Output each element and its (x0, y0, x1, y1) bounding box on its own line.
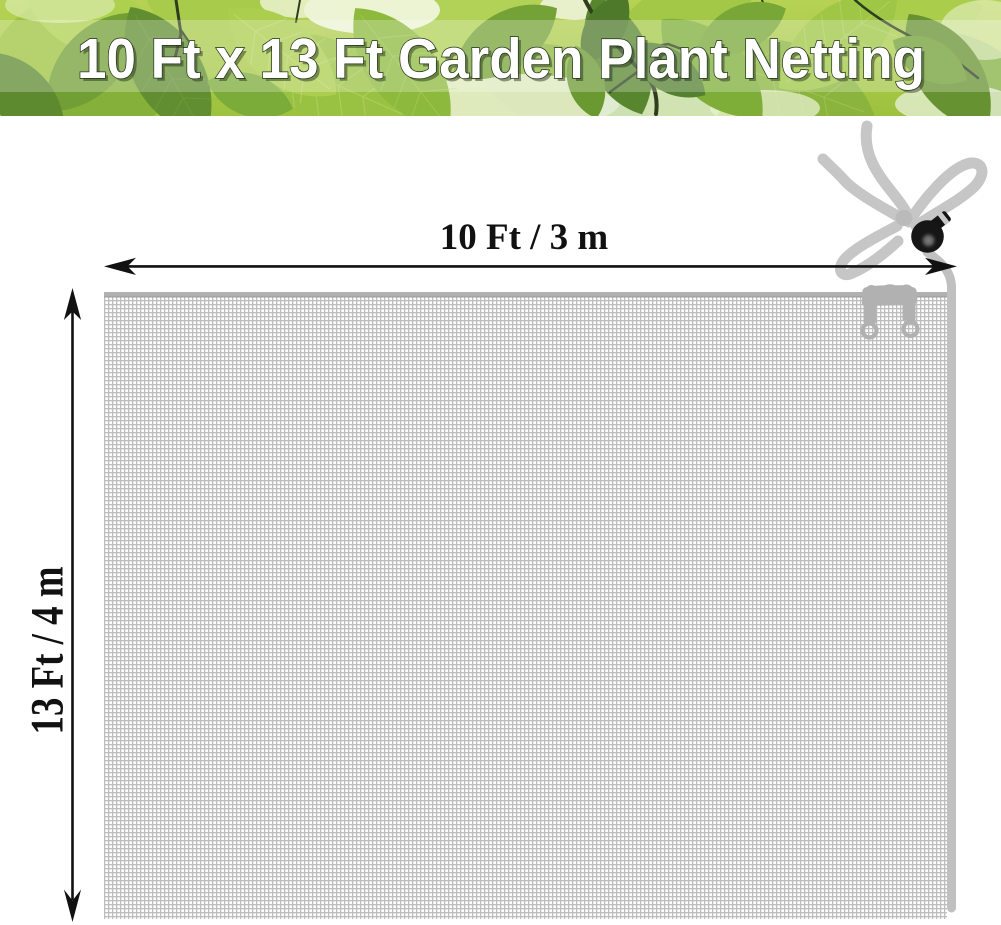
svg-text:10 Ft / 3 m: 10 Ft / 3 m (440, 217, 609, 258)
svg-text:10 Ft x 13 Ft Garden Plant Net: 10 Ft x 13 Ft Garden Plant Netting (77, 27, 925, 91)
svg-text:13 Ft / 4 m: 13 Ft / 4 m (23, 567, 74, 735)
